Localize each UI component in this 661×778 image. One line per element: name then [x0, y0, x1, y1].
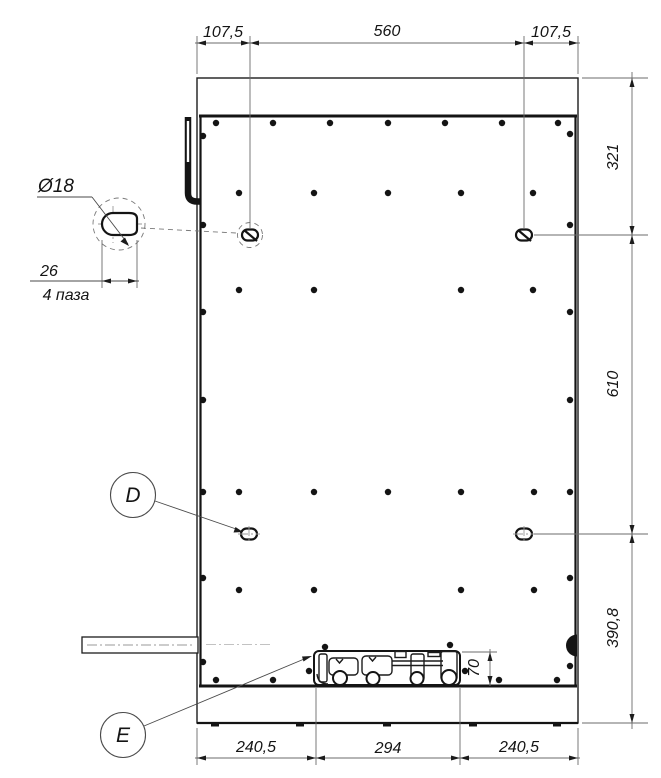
arrowhead — [569, 756, 578, 761]
mounting-hole — [236, 287, 242, 293]
dim-assembly-height: 70 — [466, 659, 483, 677]
mounting-hole — [200, 309, 206, 315]
arrowhead — [630, 226, 635, 235]
callout-e-label: E — [116, 724, 131, 747]
technical-drawing: 107,5 560 107,5 321 610 390,8 240,5 294 — [0, 0, 661, 778]
foot-tab — [211, 723, 219, 727]
panel — [197, 78, 578, 727]
arrowhead — [630, 235, 635, 244]
mounting-hole — [530, 287, 536, 293]
mounting-hole — [567, 309, 573, 315]
mounting-hole — [458, 587, 464, 593]
mounting-hole — [458, 489, 464, 495]
arrowhead — [515, 41, 524, 46]
arrowhead — [524, 41, 533, 46]
mounting-hole-pattern — [200, 120, 573, 683]
dimension-assembly-height: 70 — [462, 649, 497, 686]
foot-tab — [553, 723, 561, 727]
mounting-hole — [200, 489, 206, 495]
dim-top-middle: 560 — [374, 23, 401, 40]
mounting-hole — [200, 659, 206, 665]
mounting-hole — [213, 120, 219, 126]
mounting-hole — [567, 131, 573, 137]
mounting-hole — [567, 489, 573, 495]
arrowhead — [302, 656, 312, 662]
arrowhead — [121, 238, 130, 247]
arrowhead — [316, 756, 325, 761]
detail-slot-length: 26 — [39, 263, 58, 280]
dim-top-left: 107,5 — [203, 24, 243, 41]
mounting-hole — [213, 677, 219, 683]
arrowhead — [197, 41, 206, 46]
mounting-hole — [311, 587, 317, 593]
arrowhead — [128, 279, 137, 284]
drawing-canvas: 107,5 560 107,5 321 610 390,8 240,5 294 — [0, 0, 661, 778]
mounting-hole — [270, 677, 276, 683]
mounting-hole — [327, 120, 333, 126]
arrowhead — [630, 534, 635, 543]
arrowhead — [630, 78, 635, 87]
arrowhead — [630, 714, 635, 723]
panel-outline — [197, 78, 578, 723]
mounting-hole — [322, 644, 328, 650]
arrowhead — [488, 652, 493, 661]
mounting-hole — [531, 489, 537, 495]
mounting-hole — [200, 133, 206, 139]
detail-diameter-label: Ø18 — [37, 176, 74, 197]
arrowhead — [630, 525, 635, 534]
dim-bottom-left: 240,5 — [235, 739, 276, 756]
assembly-roller-2 — [367, 672, 380, 685]
dim-bottom-right: 240,5 — [498, 739, 539, 756]
callout-d-label: D — [125, 484, 140, 507]
mounting-hole — [555, 120, 561, 126]
arrowhead — [197, 756, 206, 761]
arrowhead — [102, 279, 111, 284]
assembly-roller-4 — [442, 670, 457, 685]
mounting-hole — [567, 663, 573, 669]
callout-d: D — [111, 473, 244, 533]
mounting-hole — [200, 397, 206, 403]
mounting-hole — [496, 677, 502, 683]
right-edge-bump — [566, 635, 577, 657]
foot-tab — [469, 723, 477, 727]
mounting-hole — [200, 575, 206, 581]
mounting-hole — [236, 587, 242, 593]
detail-link-line — [141, 228, 236, 233]
assembly-roller-3 — [411, 672, 424, 685]
dim-bottom-middle: 294 — [374, 740, 402, 757]
mounting-hole — [447, 642, 453, 648]
hook-bracket — [188, 117, 201, 202]
arrowhead — [451, 756, 460, 761]
mounting-hole — [306, 668, 312, 674]
mounting-hole — [458, 190, 464, 196]
mounting-hole — [311, 489, 317, 495]
dimension-right: 321 610 390,8 — [534, 72, 648, 729]
callout-e: E — [101, 656, 313, 758]
mounting-hole — [442, 120, 448, 126]
mounting-hole — [311, 287, 317, 293]
foot-tab — [296, 723, 304, 727]
assembly-roller-1 — [333, 671, 347, 685]
mounting-hole — [200, 222, 206, 228]
mounting-hole — [236, 489, 242, 495]
mounting-hole — [499, 120, 505, 126]
arrowhead — [488, 676, 493, 685]
mounting-hole — [567, 222, 573, 228]
side-tube — [82, 637, 273, 653]
mounting-hole — [385, 190, 391, 196]
dim-right-lower: 390,8 — [605, 608, 622, 648]
drain-assembly — [314, 651, 460, 685]
slot-detail-view: Ø18 26 4 паза — [30, 176, 236, 304]
mounting-hole — [567, 575, 573, 581]
dim-top-right: 107,5 — [531, 24, 571, 41]
mounting-hole — [385, 120, 391, 126]
dim-right-middle: 610 — [605, 371, 622, 398]
arrowhead — [307, 756, 316, 761]
mounting-hole — [311, 190, 317, 196]
mounting-hole — [531, 587, 537, 593]
mounting-hole — [530, 190, 536, 196]
callout-leader — [144, 657, 309, 726]
dim-right-upper: 321 — [605, 144, 622, 171]
mounting-hole — [567, 397, 573, 403]
arrowhead — [460, 756, 469, 761]
arrowhead — [250, 41, 259, 46]
mounting-hole — [270, 120, 276, 126]
mounting-hole — [385, 489, 391, 495]
arrowhead — [569, 41, 578, 46]
mounting-hole — [236, 190, 242, 196]
foot-tab — [383, 723, 391, 727]
mounting-hole — [458, 287, 464, 293]
arrowhead — [241, 41, 250, 46]
mounting-hole — [554, 677, 560, 683]
detail-slot-note: 4 паза — [43, 287, 90, 304]
hook-shape — [188, 117, 201, 202]
